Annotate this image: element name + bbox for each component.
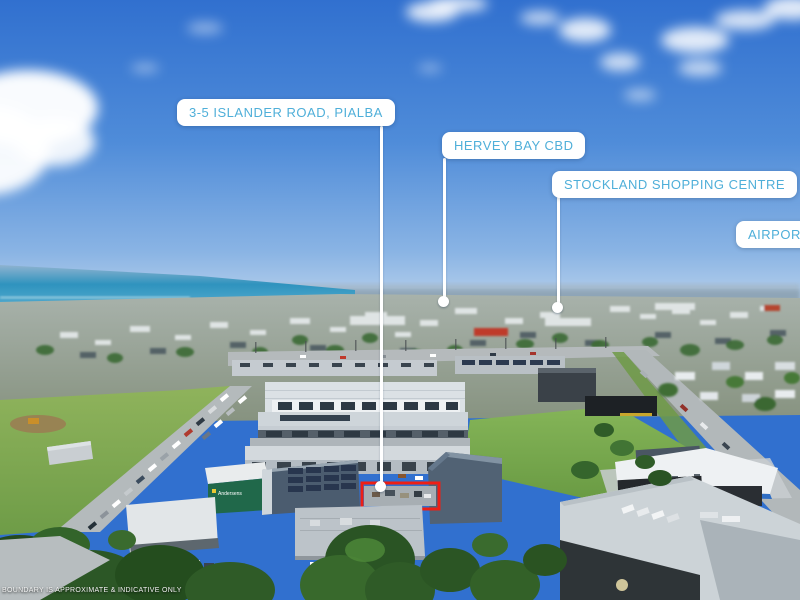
boundary-disclaimer: BOUNDARY IS APPROXIMATE & INDICATIVE ONL… <box>2 587 182 594</box>
andersens-logo <box>212 489 216 493</box>
subject-property <box>362 483 439 509</box>
marker-dot-cbd <box>438 296 449 307</box>
label-airport: AIRPORT <box>736 221 800 248</box>
marker-dot-property <box>375 481 386 492</box>
building-logo <box>616 579 628 591</box>
label-hervey-bay-cbd: HERVEY BAY CBD <box>442 132 585 159</box>
red-building <box>474 328 508 336</box>
photo-scene: Andersens <box>0 0 800 600</box>
leader-line-stockland <box>557 197 560 304</box>
marker-dot-stockland <box>552 302 563 313</box>
label-property-address: 3-5 ISLANDER ROAD, PIALBA <box>177 99 395 126</box>
andersens-sign-text: Andersens <box>218 491 242 497</box>
aerial-property-photo: Andersens <box>0 0 800 600</box>
label-stockland-shopping-centre: STOCKLAND SHOPPING CENTRE <box>552 171 797 198</box>
leader-line-property <box>380 126 383 486</box>
warehouse-main <box>250 382 470 448</box>
leader-line-cbd <box>443 158 446 298</box>
excavator <box>28 418 39 424</box>
